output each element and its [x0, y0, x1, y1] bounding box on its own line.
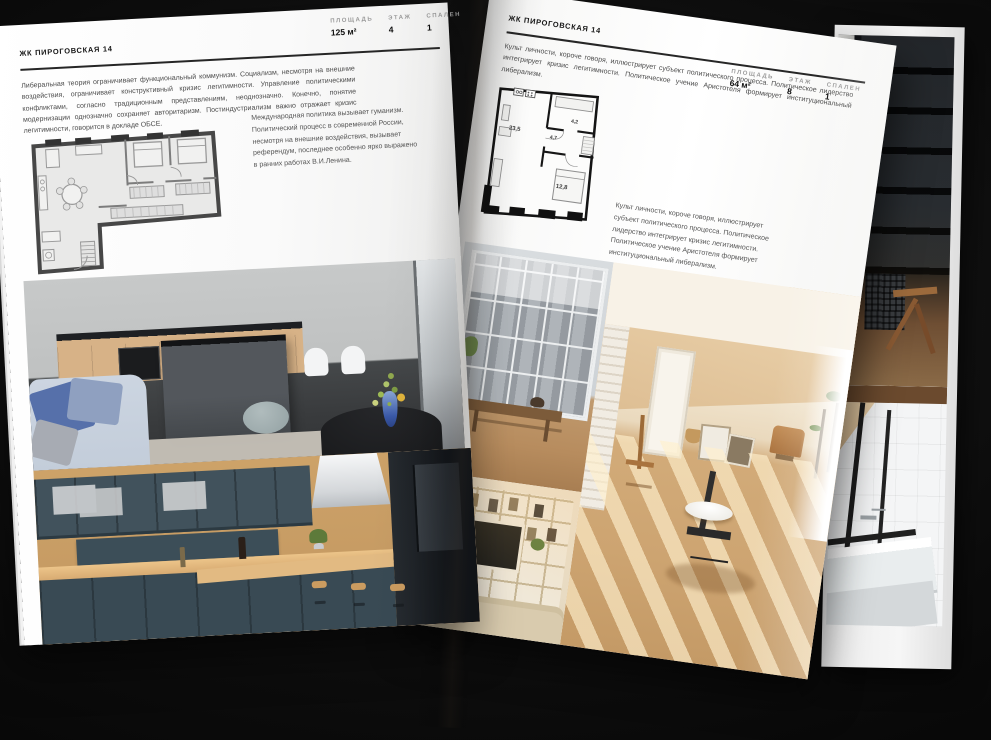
stat-label: ЭТАЖ: [788, 77, 812, 86]
bench-leg-shape: [472, 409, 479, 431]
faucet-shape: [861, 515, 877, 519]
page-title: ЖК ПИРОГОВСКАЯ 14: [19, 44, 113, 58]
stat-bedrooms: СПАЛЕН 1: [426, 12, 462, 33]
room-area-label: 4,7: [549, 135, 557, 142]
white-chair-shape: [304, 347, 329, 376]
table-shape: [320, 404, 443, 456]
photo-kitchen-island: [23, 258, 464, 470]
floor-plan-left-svg: [22, 122, 231, 280]
stat-area: ПЛОЩАДЬ 125 м²: [330, 16, 374, 37]
left-page: ЖК ПИРОГОВСКАЯ 14 ПЛОЩАДЬ 125 м² ЭТАЖ 4 …: [0, 2, 480, 645]
room-area-label: 4,2: [571, 119, 579, 126]
floor-plan-right-svg: 23,5 4,7 4,2 12,8: [468, 64, 619, 252]
stool-shape: [351, 582, 366, 590]
hood-shape: [309, 452, 390, 508]
photo-bathroom: [826, 385, 947, 627]
plant-shape: [308, 529, 327, 544]
glass-frame-shape: [877, 410, 891, 549]
white-chair-shape: [340, 345, 365, 374]
dishes-shape: [52, 485, 97, 515]
page-title: ЖК ПИРОГОВСКАЯ 14: [508, 13, 602, 35]
plan-caption: Международная политика вызывает гуманизм…: [251, 104, 422, 171]
stat-floor: ЭТАЖ 4: [388, 14, 412, 34]
stool-shape: [390, 584, 405, 592]
stool-shape: [311, 581, 326, 589]
pillow-shape: [66, 377, 123, 425]
fridge-shape: [415, 462, 463, 551]
floor-plan-left: [22, 122, 231, 280]
stat-label: СПАЛЕН: [426, 12, 461, 20]
stat-floor: ЭТАЖ 8: [786, 77, 812, 99]
stat-label: ПЛОЩАДЬ: [330, 16, 373, 24]
stat-value: 1: [427, 21, 462, 33]
wood-chair-leg-shape: [915, 303, 936, 354]
stat-label: ЭТАЖ: [388, 14, 412, 21]
stat-value: 4: [388, 23, 412, 34]
photo-attic-room: [560, 262, 861, 679]
magazine-mockup-stage: ЖК ПИРОГОВСКАЯ 14 Культ личности, короче…: [0, 0, 991, 740]
floor-plan-right: 23,5 4,7 4,2 12,8: [468, 64, 619, 252]
stats-row: ПЛОЩАДЬ 125 м² ЭТАЖ 4 СПАЛЕН 1: [330, 12, 462, 38]
stat-value: 125 м²: [331, 25, 374, 37]
photo-kitchen-wood: [33, 448, 480, 645]
window-grid-shape: [450, 249, 608, 421]
